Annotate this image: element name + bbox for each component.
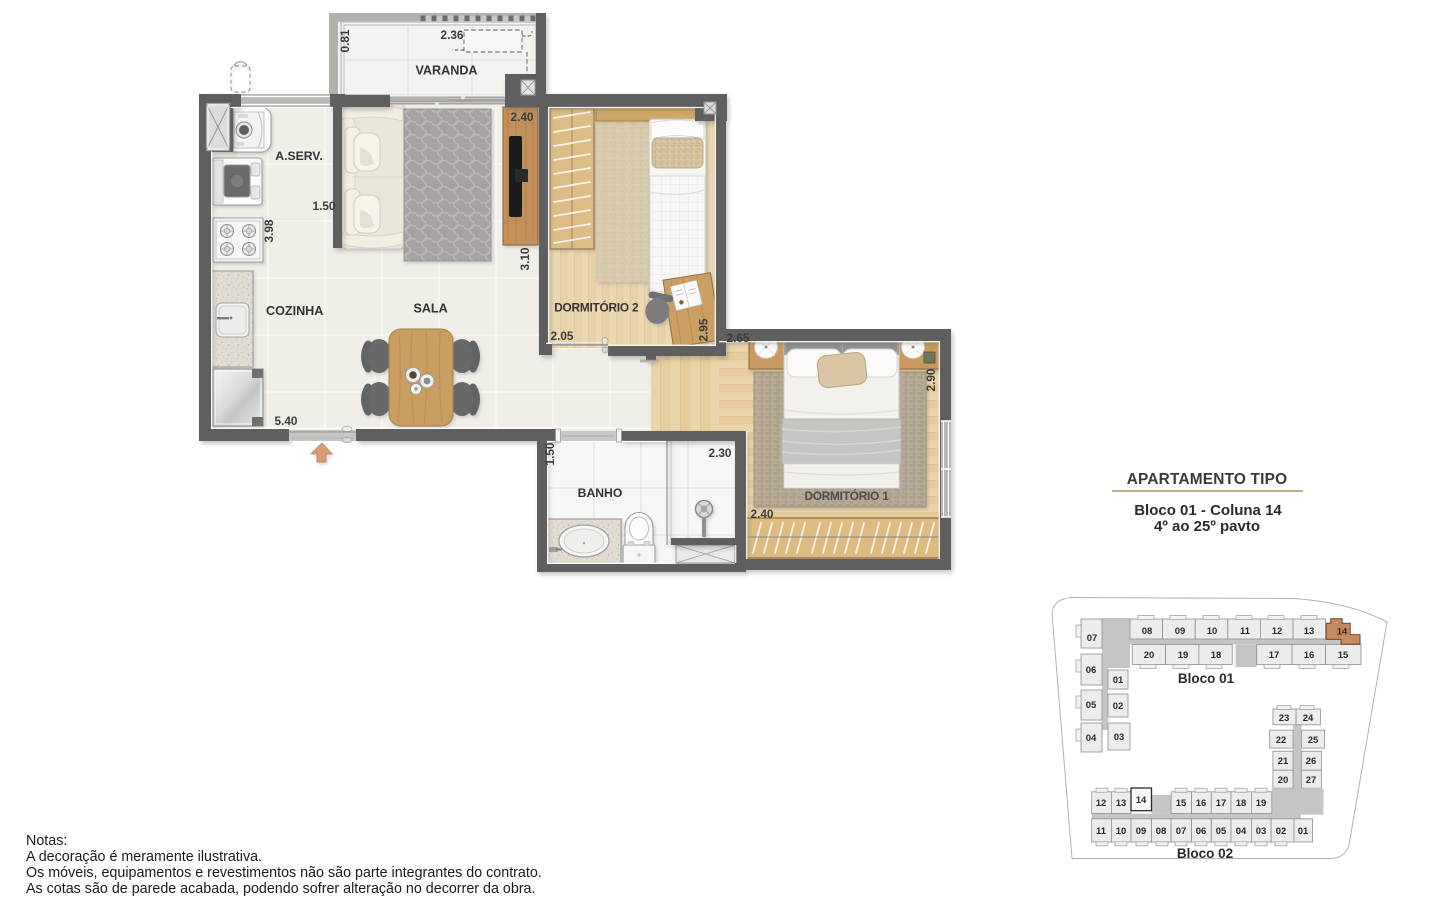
svg-text:0.81: 0.81 bbox=[338, 29, 352, 52]
svg-text:2.40: 2.40 bbox=[511, 110, 534, 124]
svg-text:06: 06 bbox=[1086, 665, 1097, 676]
svg-text:24: 24 bbox=[1303, 713, 1314, 724]
svg-text:2.36: 2.36 bbox=[441, 28, 464, 42]
svg-text:04: 04 bbox=[1086, 733, 1097, 744]
svg-text:1.50: 1.50 bbox=[313, 199, 336, 213]
svg-text:01: 01 bbox=[1298, 826, 1309, 837]
svg-text:03: 03 bbox=[1256, 826, 1267, 837]
svg-text:04: 04 bbox=[1236, 826, 1247, 837]
svg-text:08: 08 bbox=[1142, 626, 1153, 637]
svg-text:01: 01 bbox=[1113, 675, 1124, 686]
svg-text:3.10: 3.10 bbox=[518, 247, 532, 270]
svg-text:06: 06 bbox=[1196, 826, 1207, 837]
svg-text:25: 25 bbox=[1308, 735, 1319, 746]
svg-text:13: 13 bbox=[1304, 626, 1315, 637]
svg-text:2.65: 2.65 bbox=[727, 331, 750, 345]
svg-text:Bloco 01 - Coluna 14: Bloco 01 - Coluna 14 bbox=[1134, 502, 1282, 519]
svg-text:09: 09 bbox=[1136, 826, 1147, 837]
svg-text:Notas:: Notas: bbox=[26, 833, 67, 849]
svg-text:COZINHA: COZINHA bbox=[266, 304, 323, 318]
svg-text:15: 15 bbox=[1176, 798, 1187, 809]
svg-text:02: 02 bbox=[1276, 826, 1287, 837]
svg-text:As cotas são de parede acabada: As cotas são de parede acabada, podendo … bbox=[26, 881, 535, 897]
svg-text:SALA: SALA bbox=[413, 302, 447, 316]
svg-text:14: 14 bbox=[1337, 627, 1348, 638]
svg-text:VARANDA: VARANDA bbox=[415, 64, 477, 78]
svg-text:13: 13 bbox=[1116, 798, 1127, 809]
svg-text:17: 17 bbox=[1269, 650, 1280, 661]
svg-text:12: 12 bbox=[1272, 626, 1283, 637]
svg-text:DORMITÓRIO 1: DORMITÓRIO 1 bbox=[804, 489, 889, 503]
svg-text:2.30: 2.30 bbox=[709, 446, 732, 460]
svg-text:19: 19 bbox=[1256, 798, 1267, 809]
svg-text:2.95: 2.95 bbox=[697, 318, 711, 341]
svg-text:11: 11 bbox=[1096, 826, 1107, 837]
svg-text:19: 19 bbox=[1178, 650, 1189, 661]
svg-text:2.90: 2.90 bbox=[924, 368, 938, 391]
svg-text:18: 18 bbox=[1236, 798, 1247, 809]
svg-text:22: 22 bbox=[1276, 735, 1287, 746]
svg-text:5.40: 5.40 bbox=[275, 414, 298, 428]
svg-text:Bloco 02: Bloco 02 bbox=[1177, 846, 1233, 861]
svg-text:08: 08 bbox=[1156, 826, 1167, 837]
svg-text:12: 12 bbox=[1096, 798, 1107, 809]
svg-text:4º ao 25º pavto: 4º ao 25º pavto bbox=[1154, 518, 1260, 535]
svg-text:10: 10 bbox=[1116, 826, 1127, 837]
svg-text:1.50: 1.50 bbox=[543, 442, 557, 465]
svg-text:3.98: 3.98 bbox=[262, 219, 276, 242]
svg-text:14: 14 bbox=[1136, 795, 1147, 806]
svg-text:20: 20 bbox=[1144, 650, 1155, 661]
svg-text:17: 17 bbox=[1216, 798, 1227, 809]
svg-text:07: 07 bbox=[1176, 826, 1187, 837]
svg-text:11: 11 bbox=[1240, 626, 1251, 637]
svg-text:21: 21 bbox=[1278, 756, 1289, 767]
svg-text:05: 05 bbox=[1086, 700, 1097, 711]
svg-text:09: 09 bbox=[1175, 626, 1186, 637]
svg-text:05: 05 bbox=[1216, 826, 1227, 837]
svg-text:23: 23 bbox=[1279, 713, 1290, 724]
svg-text:16: 16 bbox=[1196, 798, 1207, 809]
svg-text:26: 26 bbox=[1306, 756, 1317, 767]
svg-text:27: 27 bbox=[1306, 775, 1317, 786]
svg-text:APARTAMENTO TIPO: APARTAMENTO TIPO bbox=[1127, 471, 1288, 488]
svg-text:03: 03 bbox=[1114, 732, 1125, 743]
svg-text:02: 02 bbox=[1113, 701, 1124, 712]
svg-text:A decoração é meramente ilustr: A decoração é meramente ilustrativa. bbox=[26, 849, 262, 865]
svg-text:18: 18 bbox=[1211, 650, 1222, 661]
svg-text:10: 10 bbox=[1207, 626, 1218, 637]
svg-text:DORMITÓRIO 2: DORMITÓRIO 2 bbox=[554, 301, 639, 315]
svg-text:A.SERV.: A.SERV. bbox=[275, 149, 322, 163]
svg-text:Os móveis, equipamentos e reve: Os móveis, equipamentos e revestimentos … bbox=[26, 865, 542, 881]
svg-text:BANHO: BANHO bbox=[578, 486, 623, 500]
svg-text:16: 16 bbox=[1304, 650, 1315, 661]
svg-text:15: 15 bbox=[1338, 650, 1349, 661]
svg-text:Bloco 01: Bloco 01 bbox=[1178, 671, 1235, 686]
svg-text:2.40: 2.40 bbox=[751, 507, 774, 521]
svg-text:07: 07 bbox=[1087, 633, 1098, 644]
svg-text:20: 20 bbox=[1278, 775, 1289, 786]
svg-text:2.05: 2.05 bbox=[551, 329, 574, 343]
